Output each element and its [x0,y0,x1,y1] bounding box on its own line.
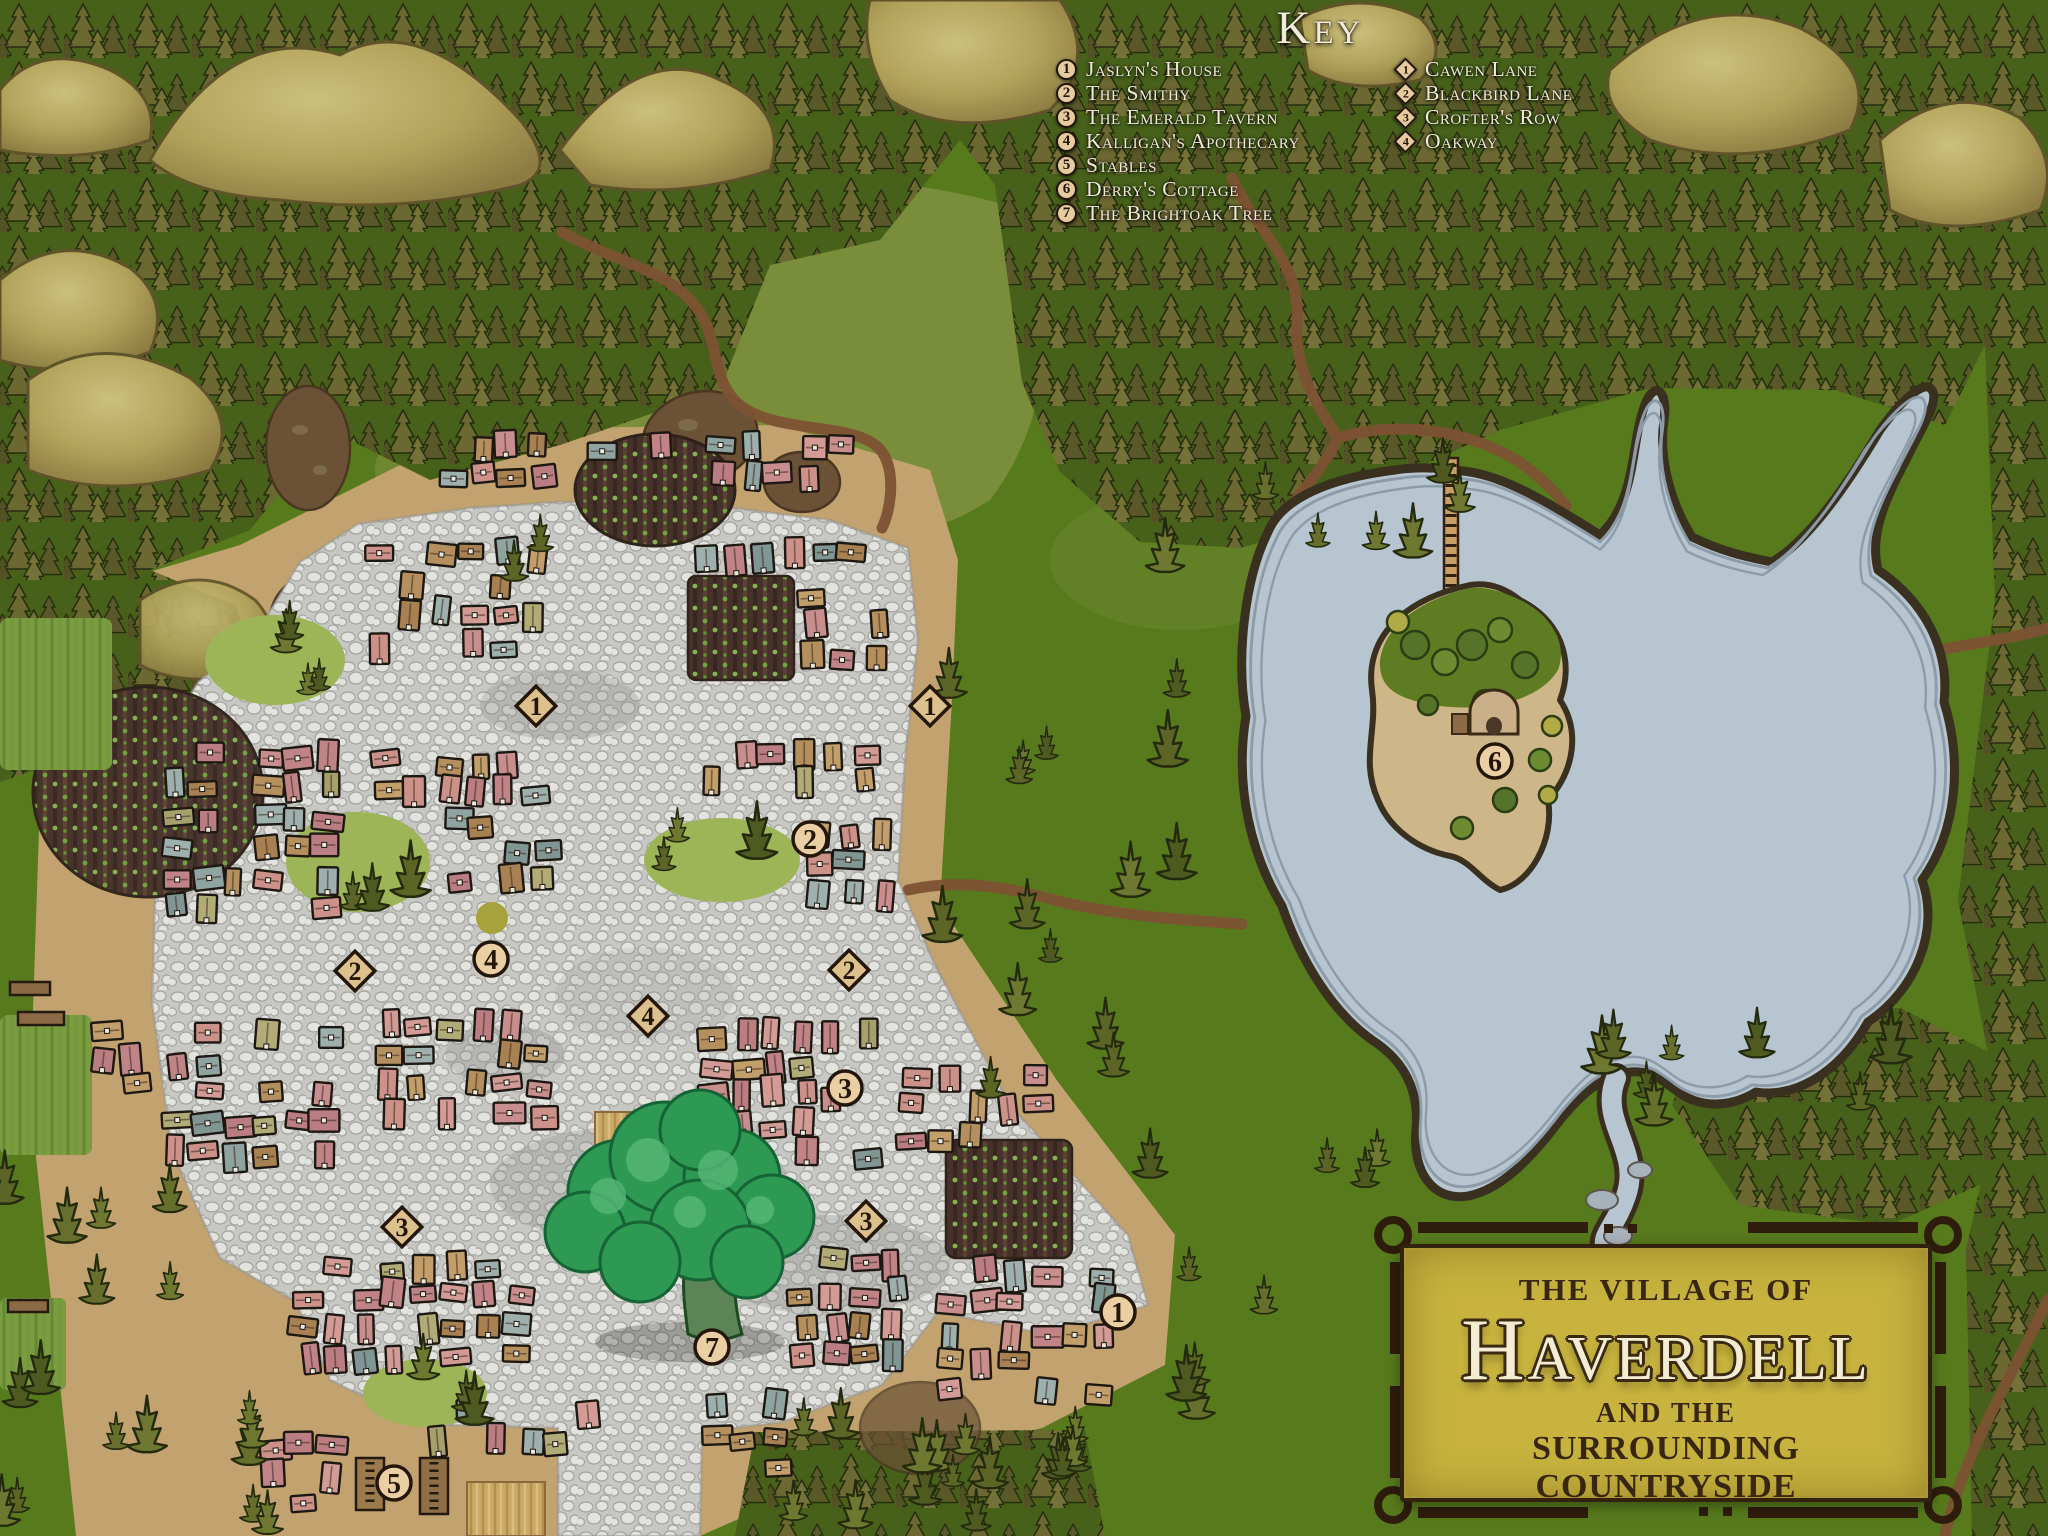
house [315,1435,348,1455]
house [543,1432,568,1456]
house [188,781,217,797]
house [804,608,828,639]
house [466,1069,487,1095]
house [324,1345,347,1373]
house [796,1137,819,1166]
house [494,1102,526,1123]
house [1000,1321,1021,1352]
house [385,1346,402,1374]
house [803,436,827,459]
house [535,840,562,861]
house [494,430,517,458]
location-marker-badge: 2 [1056,83,1077,104]
house [855,746,881,765]
house [165,767,184,797]
house [531,464,557,489]
key-title: Key [1040,2,1600,54]
key-location-item: 3The Emerald Tavern [1056,105,1394,129]
location-marker-badge: 4 [1056,131,1077,152]
house [472,1281,495,1308]
house [197,894,218,923]
house [819,1246,848,1270]
house [187,1141,218,1161]
house [302,1342,322,1374]
house [319,1027,343,1048]
house [254,834,279,860]
house [252,775,285,797]
house [528,433,546,456]
house [477,1315,500,1338]
svg-text:1: 1 [530,692,543,721]
map-key-panel: Key 1Jaslyn's House 2The Smithy 3The Eme… [1040,2,1620,225]
house [410,1285,436,1303]
house [790,1343,815,1367]
house [751,543,774,574]
house [284,808,305,831]
house [1032,1267,1062,1287]
house [700,1059,733,1080]
house [830,650,855,671]
house [167,1053,188,1081]
house [745,460,763,491]
house [162,837,193,859]
house [756,744,784,764]
house [849,1288,880,1308]
house [1085,1384,1112,1406]
house [959,1122,982,1148]
house [733,1079,749,1111]
house [845,880,863,904]
road-marker-badge: 2 [1393,81,1417,105]
house [463,629,483,657]
house [853,1148,882,1170]
house [162,808,194,827]
house [323,1257,352,1277]
house [729,1432,755,1451]
house [428,1425,447,1457]
house [797,589,825,607]
house [500,1010,521,1041]
house [1004,1259,1026,1292]
svg-text:2: 2 [803,825,817,856]
house [473,754,489,779]
svg-text:6: 6 [1488,747,1502,778]
key-roads-list: 1Cawen Lane 2Blackbird Lane 3Crofter's R… [1394,57,1572,225]
house [439,774,461,803]
house [937,1348,963,1369]
svg-text:3: 3 [860,1207,873,1236]
house [439,1098,455,1129]
title-cartouche: THE VILLAGE OF Haverdell AND THE SURROUN… [1372,1204,1964,1536]
house [971,1349,992,1380]
house [398,600,421,631]
house [164,870,191,889]
house [588,443,617,460]
house [461,606,488,625]
house [196,743,224,763]
house [196,1055,221,1077]
location-marker-2: 2 [793,822,827,856]
house [870,609,888,638]
house [474,1009,494,1042]
house [119,1043,143,1076]
key-road-item: 1Cawen Lane [1394,57,1572,81]
house [378,1068,397,1100]
svg-text:5: 5 [387,1469,401,1500]
house [996,1293,1022,1310]
house [285,836,310,857]
house [763,1428,787,1446]
house [191,1111,225,1136]
house [399,571,424,600]
key-location-item: 6Derry's Cottage [1056,177,1394,201]
house [259,1081,283,1102]
house [383,1099,404,1130]
house [370,749,400,768]
house [471,462,495,484]
house [312,1082,332,1107]
house [418,1313,440,1345]
house [881,1309,901,1340]
house [317,739,339,772]
key-location-item: 4Kalligan's Apothecary [1056,129,1394,153]
house [736,741,758,768]
house [797,1315,818,1340]
svg-text:2: 2 [843,956,856,985]
location-marker-7: 7 [695,1330,729,1364]
house [1035,1377,1057,1405]
svg-text:2: 2 [349,957,362,986]
house [503,1345,530,1362]
house [524,1045,547,1062]
house [261,1458,285,1487]
location-marker-badge: 5 [1056,155,1077,176]
house [199,810,218,832]
house [467,816,493,839]
house [195,1023,221,1043]
house [283,772,302,803]
house [706,1394,727,1418]
house [883,1339,903,1371]
house [523,1429,545,1455]
house [762,461,792,483]
house [800,466,819,492]
house [426,542,457,567]
location-marker-badge: 1 [1056,59,1077,80]
house [448,872,472,893]
svg-text:3: 3 [396,1213,409,1242]
house [785,537,805,568]
location-marker-4: 4 [474,942,508,976]
house [762,1017,780,1049]
house [311,812,344,832]
house [836,542,866,562]
key-locations-list: 1Jaslyn's House 2The Smithy 3The Emerald… [1040,57,1394,225]
house [315,1141,334,1168]
house [763,1388,788,1420]
house [458,543,483,559]
house [813,544,836,561]
house [312,897,342,919]
house [789,1057,814,1079]
svg-text:1: 1 [1111,1298,1125,1329]
location-marker-badge: 7 [1056,203,1077,224]
road-marker-badge: 1 [1393,57,1417,81]
house [1032,1326,1064,1347]
house [365,545,393,560]
house [860,1019,877,1049]
house [370,633,390,664]
house [827,1313,849,1342]
house [196,1082,224,1099]
house [440,1320,464,1337]
house [490,642,517,659]
house [787,1289,812,1306]
key-road-item: 4Oakway [1394,129,1572,153]
road-marker-badge: 4 [1393,129,1417,153]
house [287,1316,318,1338]
house [798,1080,817,1104]
house [352,1348,378,1375]
house [225,868,241,896]
house [440,470,468,487]
house [521,786,550,806]
house [407,1075,425,1100]
cartouche-subtitle-mid: AND THE [1404,1398,1928,1430]
house [380,1276,406,1308]
house [935,1294,965,1316]
house [822,1021,838,1053]
house [494,606,518,625]
svg-text:7: 7 [705,1333,719,1364]
house [523,603,543,632]
house [255,804,287,825]
house [856,768,875,792]
house [706,436,736,454]
house [308,1109,339,1132]
house [193,865,226,891]
key-location-item: 1Jaslyn's House [1056,57,1394,81]
house [899,1093,924,1113]
house [487,1423,505,1454]
house [252,1146,278,1169]
house [491,1073,522,1091]
house [509,1285,535,1305]
house [259,749,283,767]
house [1024,1065,1047,1085]
house [498,1039,522,1069]
house [877,880,895,912]
house [323,772,339,797]
house [896,1133,927,1150]
house [998,1093,1018,1125]
house [475,1260,500,1278]
house [973,1254,997,1282]
house [819,1284,841,1310]
house [998,1352,1029,1369]
house [383,1009,400,1037]
house [282,746,314,771]
house [828,435,854,454]
house [738,1018,758,1050]
house [697,1027,726,1051]
house [432,595,451,625]
house [840,824,860,848]
house [375,781,404,799]
house [806,880,830,909]
house [576,1400,600,1429]
house [794,1021,812,1053]
house [504,841,530,865]
house [1023,1095,1053,1113]
house [284,1432,313,1454]
house [162,1111,194,1128]
house [223,1142,248,1173]
house [867,646,887,670]
location-marker-1: 1 [1101,1295,1135,1329]
house [255,1019,280,1050]
house [650,432,671,458]
house [531,1106,558,1130]
house [440,1348,472,1367]
location-marker-badge: 3 [1056,107,1077,128]
house [793,1107,814,1136]
house [291,1494,317,1512]
house [711,461,735,486]
house [320,1462,341,1494]
house [253,870,283,891]
house [496,469,525,487]
house [252,1116,275,1135]
house [903,1068,932,1088]
house [403,776,425,807]
house [499,863,524,894]
house [940,1066,961,1092]
key-road-item: 3Crofter's Row [1394,105,1572,129]
house [928,1130,953,1152]
location-marker-badge: 6 [1056,179,1077,200]
house [475,437,494,462]
house [832,850,865,870]
house [852,1254,881,1271]
house [166,1134,184,1166]
house [1062,1323,1086,1346]
house [760,1074,784,1107]
house [703,766,719,795]
house [695,545,718,572]
house [324,1314,344,1344]
house [531,867,553,890]
house [166,892,187,916]
house [526,1080,551,1098]
cartouche-panel: THE VILLAGE OF Haverdell AND THE SURROUN… [1400,1244,1932,1502]
house [502,1312,532,1336]
village-name-title: Haverdell [1404,1308,1928,1394]
location-marker-6: 6 [1478,744,1512,778]
house [724,544,746,576]
house [376,1046,403,1065]
svg-text:1: 1 [924,692,937,721]
svg-text:4: 4 [642,1002,655,1031]
house [404,1046,434,1063]
road-marker-badge: 3 [1393,105,1417,129]
house [91,1021,123,1042]
house [437,1020,464,1041]
svg-text:3: 3 [838,1074,852,1105]
key-location-item: 5Stables [1056,153,1394,177]
location-marker-3: 3 [828,1071,862,1105]
house [123,1073,152,1094]
location-marker-5: 5 [377,1466,411,1500]
house [493,774,511,804]
house [765,1459,792,1477]
house [850,1345,878,1364]
house [796,766,813,798]
house [91,1047,115,1073]
house [358,1314,374,1344]
house [293,1292,323,1309]
house [404,1017,431,1036]
key-location-item: 2The Smithy [1056,81,1394,105]
house [937,1378,962,1401]
house [310,834,338,857]
house [702,1425,733,1445]
house [465,777,485,807]
house [888,1276,908,1302]
key-location-item: 7The Brightoak Tree [1056,201,1394,225]
house [849,1312,871,1339]
house [743,431,761,460]
house [439,1283,467,1302]
house [800,640,824,669]
house [759,1121,786,1139]
house [447,1250,467,1280]
house [317,867,338,895]
cartouche-subtitle-bottom: SURROUNDING COUNTRYSIDE [1404,1430,1928,1506]
house [413,1255,435,1284]
house [824,743,842,771]
house [873,819,891,850]
svg-text:4: 4 [484,945,498,976]
key-road-item: 2Blackbird Lane [1394,81,1572,105]
house [823,1341,850,1365]
